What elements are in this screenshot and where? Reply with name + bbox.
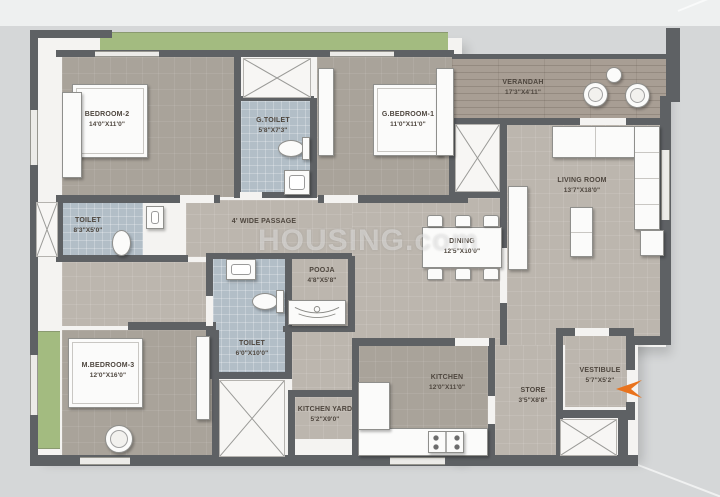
room-name: LIVING ROOM: [557, 176, 606, 186]
background-fold-line: [638, 464, 720, 497]
room-label-bedroom2: BEDROOM-2 14'0"X11'0": [85, 110, 130, 130]
room-label-mbedroom3: M.BEDROOM-3 12'0"X16'0": [82, 361, 135, 381]
sofa: [552, 126, 638, 158]
dining-chair: [483, 268, 499, 280]
room-dims: 5'8"X7'3": [256, 126, 290, 136]
room-label-store: STORE 3'5"X8'8": [519, 386, 548, 406]
window-marker: [30, 110, 38, 165]
room-label-verandah: VERANDAH 17'3"X4'11": [502, 78, 543, 98]
wc-tank-icon: [276, 290, 284, 313]
wall-segment: [626, 336, 635, 370]
shaft-x-icon: [219, 380, 285, 457]
window-marker: [390, 457, 445, 465]
room-label-living: LIVING ROOM 13'7"X18'0": [557, 176, 606, 196]
duct-x-icon: [36, 202, 58, 257]
wardrobe: [436, 68, 454, 156]
dining-chair: [455, 268, 471, 280]
coffee-table: [570, 207, 593, 257]
wardrobe: [196, 336, 210, 420]
dining-chair: [483, 215, 499, 227]
wall-segment: [234, 56, 241, 198]
duct-x-icon: [455, 124, 500, 192]
wall-segment: [30, 30, 112, 38]
room-label-gbedroom1: G.BEDROOM-1 11'0"X11'0": [382, 110, 434, 130]
room-name: TOILET: [236, 339, 269, 349]
room-name: G.TOILET: [256, 116, 290, 126]
wc-icon: [112, 230, 131, 256]
room-dims: 11'0"X11'0": [382, 120, 434, 130]
wall-segment: [288, 390, 295, 457]
kitchen-counter: [358, 428, 488, 456]
room-label-toilet1: TOILET 8'3"X5'0": [74, 216, 103, 236]
room-label-kitchen: KITCHEN 12'0"X11'0": [429, 373, 465, 393]
room-name: POOJA: [308, 266, 337, 276]
wall-segment: [212, 330, 219, 457]
wall-segment: [452, 54, 670, 59]
housing-watermark: HOUSING.com: [258, 224, 479, 258]
room-label-pooja: POOJA 4'8"X5'8": [308, 266, 337, 286]
room-dims: 5'2"X9'0": [298, 415, 353, 425]
background-band: [0, 0, 720, 26]
door-opening: [180, 195, 214, 203]
kitchen-counter: [358, 382, 390, 430]
wall-segment: [310, 98, 317, 198]
stove-icon: [428, 431, 464, 453]
window-marker: [95, 51, 159, 57]
window-marker: [80, 457, 130, 465]
door-opening: [240, 192, 262, 198]
verandah-chair: [583, 82, 608, 107]
room-name: KITCHEN: [429, 373, 465, 383]
wall-segment: [666, 28, 680, 102]
shaft-x-icon: [560, 419, 617, 456]
wall-segment: [660, 96, 671, 344]
door-opening: [206, 296, 213, 326]
room-label-gtoilet: G.TOILET 5'8"X7'3": [256, 116, 290, 136]
room-label-toilet2: TOILET 6'0"X10'0": [236, 339, 269, 359]
room-name: BEDROOM-2: [85, 110, 130, 120]
door-opening: [488, 396, 495, 424]
door-opening: [455, 338, 489, 346]
pooja-shrine-icon: [288, 300, 346, 325]
wardrobe-x-icon: [243, 58, 311, 98]
room-name: VERANDAH: [502, 78, 543, 88]
washbasin-icon: [284, 170, 310, 195]
door-opening: [580, 118, 626, 125]
wall-segment: [56, 255, 188, 262]
window-marker: [30, 355, 38, 415]
room-name: G.BEDROOM-1: [382, 110, 434, 120]
bedroom3-entry-floor: [62, 262, 206, 326]
room-dims: 5'7"X5'2": [579, 376, 620, 386]
wc-icon: [252, 293, 278, 310]
room-name: KITCHEN YARD: [298, 405, 353, 415]
door-opening: [575, 328, 609, 336]
floor-plan: BEDROOM-2 14'0"X11'0" G.TOILET 5'8"X7'3"…: [0, 0, 720, 497]
wall-segment: [128, 322, 216, 330]
dining-floor: [352, 198, 500, 345]
wall-segment: [556, 410, 628, 418]
wardrobe: [62, 92, 82, 178]
room-label-kitchen-yard: KITCHEN YARD 5'2"X9'0": [298, 405, 353, 425]
wardrobe: [318, 68, 334, 156]
sofa: [634, 126, 660, 230]
pooja-front-floor: [292, 331, 352, 397]
verandah-table: [606, 67, 622, 83]
tv-unit: [508, 186, 528, 270]
wc-icon: [278, 140, 304, 157]
bedroom-chair: [105, 425, 133, 453]
room-dims: 4'8"X5'8": [308, 276, 337, 286]
room-dims: 6'0"X10'0": [236, 349, 269, 359]
wc-tank-icon: [302, 137, 310, 160]
door-opening: [324, 195, 358, 203]
window-marker: [330, 51, 394, 57]
wall-segment: [283, 326, 355, 332]
washbasin-icon: [146, 206, 164, 229]
verandah-chair: [625, 83, 650, 108]
sofa-side-table: [640, 230, 664, 256]
wall-segment: [288, 390, 358, 397]
window-marker: [661, 150, 670, 220]
wall-segment: [618, 415, 628, 463]
room-dims: 8'3"X5'0": [74, 226, 103, 236]
room-name: VESTIBULE: [579, 366, 620, 376]
room-name: STORE: [519, 386, 548, 396]
left-planter-strip: [36, 331, 60, 449]
room-dims: 14'0"X11'0": [85, 120, 130, 130]
room-dims: 12'0"X16'0": [82, 371, 135, 381]
room-name: M.BEDROOM-3: [82, 361, 135, 371]
room-label-vestibule: VESTIBULE 5'7"X5'2": [579, 366, 620, 386]
washbasin-icon: [226, 259, 256, 280]
room-dims: 3'5"X8'8": [519, 396, 548, 406]
room-name: TOILET: [74, 216, 103, 226]
room-dims: 13'7"X18'0": [557, 186, 606, 196]
room-dims: 12'0"X11'0": [429, 383, 465, 393]
wall-segment: [348, 256, 355, 331]
dining-chair: [427, 268, 443, 280]
room-dims: 17'3"X4'11": [502, 88, 543, 98]
